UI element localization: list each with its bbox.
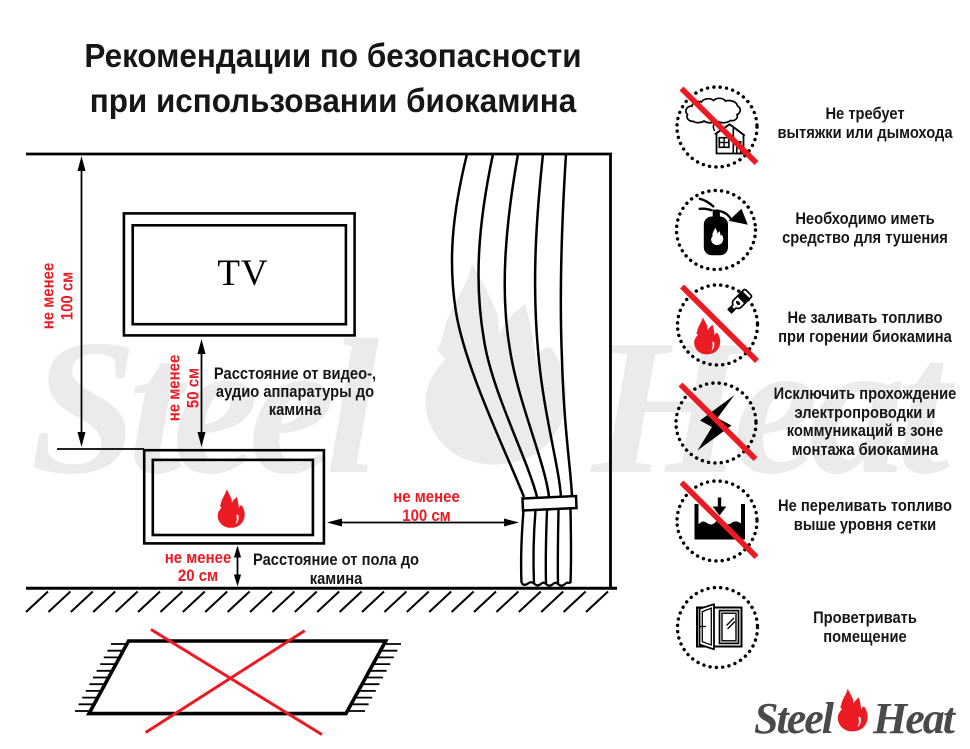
svg-text:Heat: Heat xyxy=(872,694,957,743)
svg-text:Steel: Steel xyxy=(754,694,835,743)
